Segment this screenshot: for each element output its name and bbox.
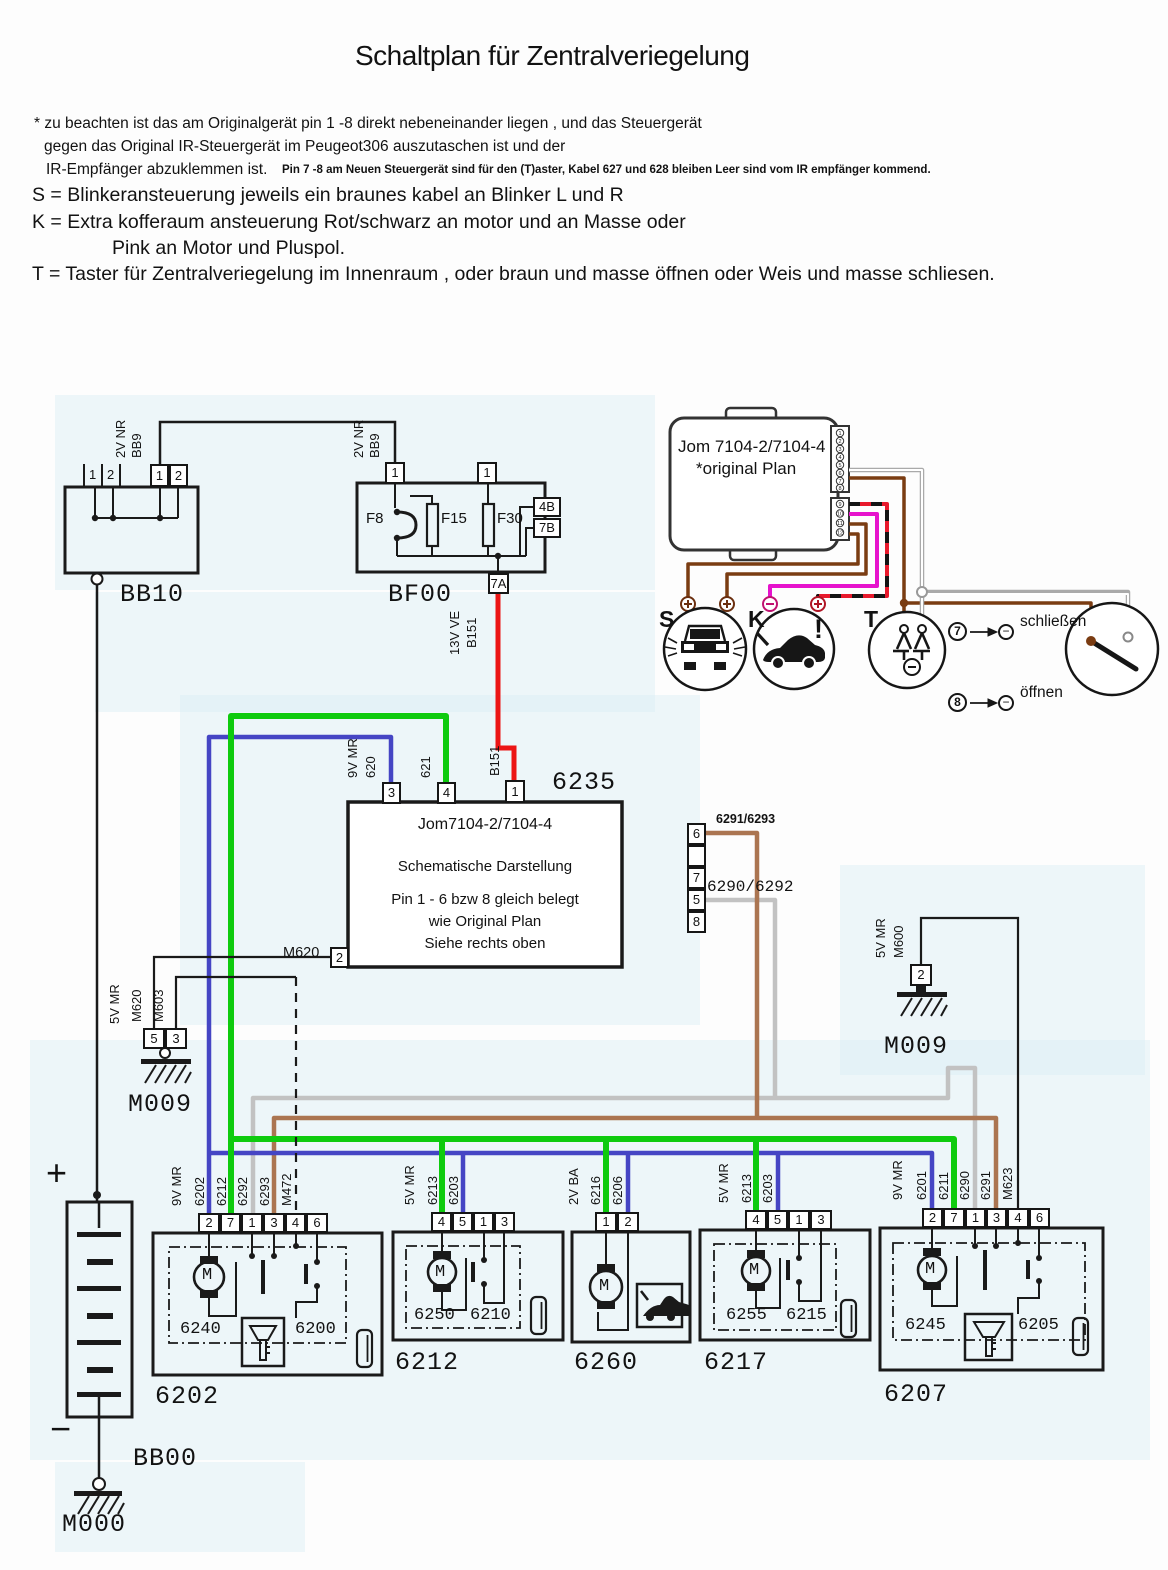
box2-pin-1: 1 xyxy=(473,1212,494,1232)
note-line-3: IR-Empfänger abzuklemmen ist. xyxy=(46,161,267,179)
box1-pin-4: 4 xyxy=(285,1213,306,1233)
box5-wire-6201: 6201 xyxy=(915,1171,929,1200)
bf00-fuse-f8: F8 xyxy=(366,510,384,527)
bf00-pin-1-left: 1 xyxy=(385,462,405,484)
box1-pin-1: 1 xyxy=(241,1213,263,1233)
door-icon xyxy=(531,1297,546,1334)
u6235-label-621: 621 xyxy=(419,756,433,778)
page-title: Schaltplan für Zentralveriegelung xyxy=(355,40,749,72)
svg-text:11: 11 xyxy=(837,521,843,527)
u6235-text-2: Schematische Darstellung xyxy=(348,858,622,875)
box3-volt-label: 2V BA xyxy=(567,1168,581,1205)
box4-wire-6213: 6213 xyxy=(740,1174,754,1203)
k-label: K xyxy=(748,606,765,633)
box5-pin-2: 2 xyxy=(922,1208,943,1228)
m600-m623-wire xyxy=(921,918,1018,1208)
motor-letter-2: M xyxy=(435,1263,445,1282)
door-icon xyxy=(1073,1318,1088,1355)
box5-pin-6: 6 xyxy=(1029,1208,1050,1228)
legend-arrows xyxy=(970,628,997,707)
svg-text:10: 10 xyxy=(837,512,843,518)
box2-wire-6203: 6203 xyxy=(447,1176,461,1205)
battery-plus: + xyxy=(46,1152,67,1194)
box4-wire-6203: 6203 xyxy=(761,1174,775,1203)
box4-label: 6217 xyxy=(704,1348,768,1377)
box5-inner-6205: 6205 xyxy=(1018,1316,1059,1335)
bb10-pin-1: 1 xyxy=(150,464,169,487)
bf00-fusebox xyxy=(357,483,545,573)
u6235-text-1: Jom7104-2/7104-4 xyxy=(348,816,622,834)
box3-wire-6206: 6206 xyxy=(611,1176,625,1205)
ground-right-label-5vmr: 5V MR xyxy=(874,918,888,958)
legend-close-label: schließen xyxy=(1020,613,1086,631)
taster-white-wire xyxy=(849,470,1128,633)
box4-pin-1: 1 xyxy=(788,1210,810,1230)
bb10-tick-1: 1 xyxy=(89,467,96,482)
box5-label: 6207 xyxy=(884,1380,948,1409)
legend-pin8-circle: 8 xyxy=(948,693,967,712)
box1-pin-7: 7 xyxy=(220,1213,241,1233)
box5-wire-6211: 6211 xyxy=(937,1172,951,1200)
box4-inner-6255: 6255 xyxy=(726,1306,767,1325)
b151-wire-label-13vve: 13V VE xyxy=(448,611,462,655)
box2-pin-5: 5 xyxy=(452,1212,473,1232)
note-line-1: * zu beachten ist das am Originalgerät p… xyxy=(34,115,702,133)
svg-text:9: 9 xyxy=(838,502,841,508)
bf00-pin-4b: 4B xyxy=(533,497,561,517)
box1-pin-3: 3 xyxy=(263,1213,285,1233)
legend-open-label: öffnen xyxy=(1020,684,1063,702)
box4-pin-3: 3 xyxy=(810,1210,832,1230)
u6235-pin-2: 2 xyxy=(330,947,349,968)
legend-k-line2: Pink an Motor und Pluspol. xyxy=(112,237,345,260)
m620-wire xyxy=(154,957,330,1028)
u6235-text-4: wie Original Plan xyxy=(348,913,622,930)
u6235-label-620: 620 xyxy=(364,756,378,778)
ground-left-label-5vmr: 5V MR xyxy=(108,984,122,1024)
s-label: S xyxy=(659,606,674,633)
bf00-pin-7a: 7A xyxy=(488,573,509,594)
svg-text:4: 4 xyxy=(838,455,841,461)
box4-inner-6215: 6215 xyxy=(786,1306,827,1325)
box2-wire-6213: 6213 xyxy=(426,1176,440,1205)
u6235-pin-1: 1 xyxy=(505,780,525,803)
box2-pin-3: 3 xyxy=(494,1212,515,1232)
motor-letter-5: M xyxy=(925,1260,935,1279)
legend-k-line1: K = Extra kofferaum ansteuerung Rot/schw… xyxy=(32,211,686,234)
box2-inner-6210: 6210 xyxy=(470,1306,511,1325)
box3-pin-1: 1 xyxy=(595,1212,617,1232)
u6235-number: 6235 xyxy=(552,768,616,797)
original-unit xyxy=(670,408,849,560)
box4-pin-4: 4 xyxy=(745,1210,767,1230)
box1-inner-6240: 6240 xyxy=(180,1320,221,1339)
taster-switch-icon xyxy=(869,612,945,688)
b151-wire-label: B151 xyxy=(465,618,479,648)
u6235-label-m620: M620 xyxy=(283,945,319,961)
motor-letter-3: M xyxy=(599,1277,609,1296)
ground-left-pin-3: 3 xyxy=(165,1028,187,1049)
legend-s-line: S = Blinkeransteuerung jeweils ein braun… xyxy=(32,184,624,207)
bf00-fuse-f15: F15 xyxy=(441,510,467,527)
svg-text:6: 6 xyxy=(838,471,841,477)
bf00-wire-label-2vnr: 2V NR xyxy=(352,420,366,458)
box2-volt-label: 5V MR xyxy=(403,1165,417,1205)
box5-pin-3: 3 xyxy=(986,1208,1007,1228)
note-line-3-bold: Pin 7 -8 am Neuen Steuergerät sind für d… xyxy=(282,164,931,176)
bb10-wire-label-2vnr: 2V NR xyxy=(114,420,128,458)
box1-wire-m472: M472 xyxy=(280,1173,294,1206)
legend-pin7-circle: 7 xyxy=(948,622,967,641)
box1-pin-6: 6 xyxy=(306,1213,328,1233)
ground-right-label-m600: M600 xyxy=(892,925,906,958)
box1-wire-6292: 6292 xyxy=(236,1177,250,1206)
box5-wire-6291: 6291 xyxy=(979,1171,993,1200)
legend-minus-circle-open: − xyxy=(998,695,1014,711)
svg-text:3: 3 xyxy=(838,447,841,453)
bb10-pin-2: 2 xyxy=(169,464,188,487)
bb10-tick-2: 2 xyxy=(107,467,114,482)
svg-text:7: 7 xyxy=(838,479,841,485)
k-exclamation: ! xyxy=(814,614,823,645)
legend-t-line: T = Taster für Zentralveriegelung im Inn… xyxy=(32,263,995,286)
ground-left-label-m603: M603 xyxy=(152,989,166,1022)
u6235-pin-5: 5 xyxy=(687,889,706,911)
motor-letter-4: M xyxy=(749,1261,759,1280)
bf00-wire-label-bb9: BB9 xyxy=(368,433,382,458)
svg-text:2: 2 xyxy=(838,439,841,445)
box1-inner-6200: 6200 xyxy=(295,1320,336,1339)
original-unit-title: Jom 7104-2/7104-4 xyxy=(678,437,825,457)
u6235-pin-4: 4 xyxy=(437,782,456,804)
box5-wire-m623: M623 xyxy=(1001,1167,1015,1200)
svg-text:8: 8 xyxy=(838,486,841,492)
ground-right-pin-2: 2 xyxy=(910,964,932,986)
u6235-label-9vmr: 9V MR xyxy=(346,738,360,778)
u6235-label-6291-6293: 6291/6293 xyxy=(716,812,775,826)
bf00-pin-1-right: 1 xyxy=(477,462,497,484)
box4-volt-label: 5V MR xyxy=(717,1163,731,1203)
box5-volt-label: 9V MR xyxy=(891,1160,905,1200)
box1-wire-6202: 6202 xyxy=(193,1177,207,1206)
box5-pin-1: 1 xyxy=(965,1208,986,1228)
ground-left-m009 xyxy=(141,1048,191,1083)
box1-wire-6212: 6212 xyxy=(215,1177,229,1206)
ground-left-label-m620: M620 xyxy=(130,989,144,1022)
trunk-open-icon xyxy=(637,1284,690,1327)
blinker-car-icon xyxy=(664,608,746,690)
u6235-pin-7: 7 xyxy=(687,867,706,889)
ground-right-name: M009 xyxy=(884,1032,948,1061)
door-box-6202 xyxy=(153,1233,382,1375)
svg-text:5: 5 xyxy=(838,463,841,469)
bb10-label: BB10 xyxy=(120,580,184,609)
ground-right-m009 xyxy=(897,986,947,1016)
legend-minus-circle-close: − xyxy=(998,624,1014,640)
u6235-text-3: Pin 1 - 6 bzw 8 gleich belegt xyxy=(348,891,622,908)
battery-symbol xyxy=(67,1202,132,1514)
ground-left-pin-5: 5 xyxy=(143,1028,165,1049)
box4-pin-5: 5 xyxy=(767,1210,788,1230)
battery-ground-label: M000 xyxy=(62,1510,126,1539)
u6235-pin-6: 6 xyxy=(687,823,706,845)
svg-text:12: 12 xyxy=(837,531,843,537)
t-label: T xyxy=(864,606,878,633)
bf00-fuse-f30: F30 xyxy=(497,510,523,527)
motor-letter-1: M xyxy=(202,1266,212,1285)
box3-pin-2: 2 xyxy=(617,1212,639,1232)
box5-pin-7: 7 xyxy=(943,1208,965,1228)
box1-wire-6293: 6293 xyxy=(258,1177,272,1206)
battery-label: BB00 xyxy=(133,1444,197,1473)
u6235-pin-3: 3 xyxy=(382,782,401,804)
note-line-2: gegen das Original IR-Steuergerät im Peu… xyxy=(44,138,565,156)
box1-pin-2: 2 xyxy=(198,1213,220,1233)
door-box-6207 xyxy=(880,1228,1103,1370)
u6235-text-5: Siehe rechts oben xyxy=(348,935,622,952)
bf00-pin-7b: 7B xyxy=(533,518,561,538)
box5-pin-4: 4 xyxy=(1007,1208,1029,1228)
bf00-label: BF00 xyxy=(388,580,452,609)
box1-volt-label: 9V MR xyxy=(170,1166,184,1206)
schematic-page: 12 34 56 78 910 1112 Schaltplan für Zent… xyxy=(0,0,1168,1570)
door-icon xyxy=(841,1300,856,1337)
svg-text:1: 1 xyxy=(838,431,841,437)
box1-label: 6202 xyxy=(155,1382,219,1411)
box2-label: 6212 xyxy=(395,1348,459,1377)
battery-minus: − xyxy=(50,1408,71,1450)
trunk-box-6260 xyxy=(572,1232,690,1342)
bb10-wire-label-bb9: BB9 xyxy=(130,433,144,458)
u6235-pin-blank xyxy=(687,845,706,867)
door-icon xyxy=(357,1330,372,1367)
box3-label: 6260 xyxy=(574,1348,638,1377)
box3-wire-6216: 6216 xyxy=(589,1176,603,1205)
battery-feed-wire xyxy=(93,585,101,1202)
u6235-label-6290-6292: 6290/6292 xyxy=(707,878,793,896)
ground-left-name: M009 xyxy=(128,1090,192,1119)
box2-pin-4: 4 xyxy=(431,1212,452,1232)
box2-inner-6250: 6250 xyxy=(414,1306,455,1325)
box5-wire-6290: 6290 xyxy=(958,1171,972,1200)
u6235-label-b151: B151 xyxy=(488,746,502,776)
u6235-pin-8: 8 xyxy=(687,911,706,933)
original-unit-subtitle: *original Plan xyxy=(696,459,796,479)
box5-inner-6245: 6245 xyxy=(905,1316,946,1335)
